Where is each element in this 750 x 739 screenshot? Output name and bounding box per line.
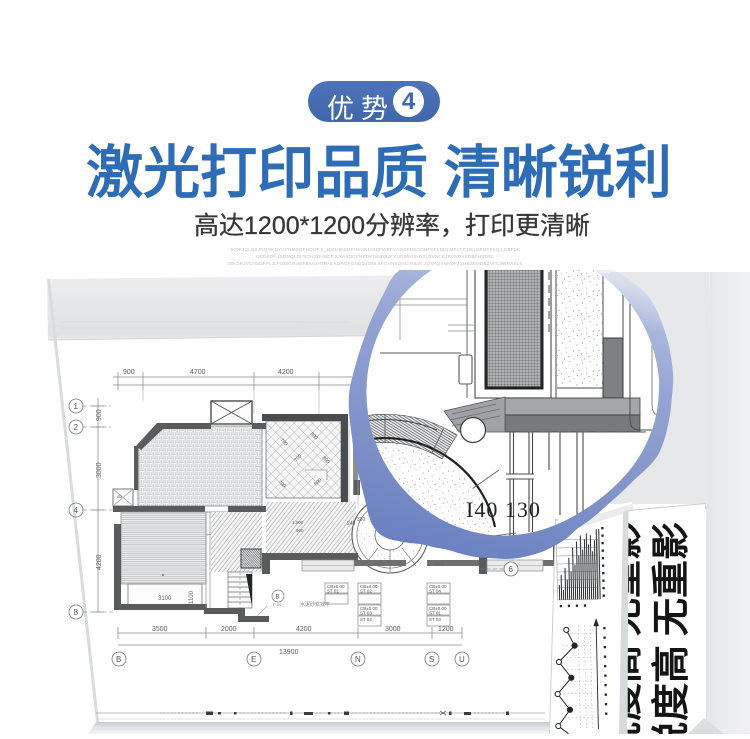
- svg-text:900: 900: [96, 409, 103, 421]
- svg-text:B: B: [116, 655, 121, 664]
- svg-text:E: E: [251, 655, 256, 664]
- svg-text:4700: 4700: [190, 369, 206, 376]
- svg-text:1.500: 1.500: [292, 520, 304, 525]
- svg-text:380: 380: [357, 517, 366, 523]
- svg-text:锐: 锐: [651, 722, 693, 734]
- svg-text:2000: 2000: [221, 626, 237, 633]
- svg-text:ST 03: ST 03: [360, 611, 372, 616]
- svg-text:900: 900: [123, 369, 135, 376]
- svg-text:6: 6: [509, 565, 514, 574]
- svg-text:db: db: [117, 494, 123, 499]
- svg-text:3000: 3000: [385, 626, 401, 633]
- svg-text:4: 4: [74, 506, 79, 515]
- svg-text:4200: 4200: [96, 554, 103, 570]
- svg-text:3500: 3500: [152, 626, 168, 633]
- svg-text:无重影: 无重影: [651, 522, 693, 636]
- svg-text:13900: 13900: [279, 649, 299, 656]
- svg-text:3000: 3000: [96, 462, 103, 478]
- svg-text:ST 01: ST 01: [327, 589, 339, 594]
- svg-text:8: 8: [74, 608, 79, 617]
- svg-text:ST 01: ST 01: [429, 611, 441, 616]
- svg-text:2: 2: [74, 423, 79, 432]
- svg-text:U: U: [459, 655, 465, 664]
- svg-text:4200: 4200: [278, 369, 294, 376]
- svg-text:S: S: [429, 655, 434, 664]
- svg-text:B: B: [276, 595, 280, 601]
- svg-text:N: N: [355, 655, 361, 664]
- svg-text:240: 240: [347, 521, 356, 527]
- svg-text:P-09: P-09: [273, 602, 282, 607]
- svg-text:1100: 1100: [189, 590, 195, 604]
- svg-text:1: 1: [74, 402, 79, 411]
- svg-text:1200: 1200: [438, 626, 454, 633]
- svg-text:3100: 3100: [158, 596, 172, 602]
- svg-text:I40 130: I40 130: [466, 497, 541, 522]
- svg-text:960: 960: [296, 528, 304, 533]
- svg-text:ST 02: ST 02: [360, 617, 372, 622]
- svg-text:水泥砂浆找平: 水泥砂浆找平: [300, 601, 330, 608]
- svg-text:ST 03: ST 03: [429, 617, 441, 622]
- svg-text:ST 04: ST 04: [429, 589, 441, 594]
- svg-text:ST 02: ST 02: [360, 589, 372, 594]
- svg-text:度高: 度高: [651, 645, 693, 721]
- svg-text:12.5: 12.5: [434, 562, 444, 568]
- svg-text:4200: 4200: [296, 626, 312, 633]
